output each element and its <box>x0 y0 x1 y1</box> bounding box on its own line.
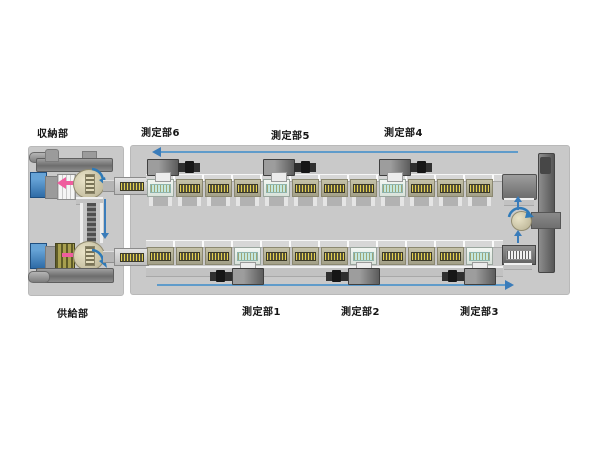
station-label-plate <box>353 184 374 193</box>
camera-bracket <box>271 172 287 182</box>
label-measurement4: 測定部4 <box>384 124 423 139</box>
station-label-plate <box>208 252 229 261</box>
camera-unit-measurement5 <box>263 158 318 186</box>
label-measurement5: 測定部5 <box>271 127 310 142</box>
measurement-station-olive <box>466 179 493 197</box>
unit-label-plate <box>120 182 144 191</box>
camera-unit-measurement1 <box>210 262 265 290</box>
right-transfer-block <box>531 212 561 229</box>
camera-lens-icon <box>294 161 316 173</box>
top-cross-unit <box>114 177 149 195</box>
camera-body <box>464 268 496 285</box>
camera-unit-measurement3 <box>442 262 497 290</box>
measurement-station-olive <box>205 179 232 197</box>
top-flow-line <box>160 151 518 153</box>
camera-unit-measurement6 <box>147 158 202 186</box>
camera-lens-icon <box>326 270 348 282</box>
unit-label-plate <box>120 253 144 262</box>
camera-body <box>348 268 380 285</box>
camera-bracket <box>155 172 171 182</box>
station-label-plate <box>179 252 200 261</box>
station-label-plate <box>411 252 432 261</box>
label-measurement2: 測定部2 <box>341 303 380 318</box>
station-label-plate <box>469 184 490 193</box>
return-conveyor-belt <box>87 203 96 243</box>
return-conveyor <box>80 203 103 243</box>
station-label-plate <box>382 252 403 261</box>
measurement-station-olive <box>147 247 174 265</box>
station-label-plate <box>440 184 461 193</box>
label-measurement1: 測定部1 <box>242 303 281 318</box>
measurement-station-olive <box>437 179 464 197</box>
station-label-plate <box>324 252 345 261</box>
return-flow-line <box>104 199 106 233</box>
camera-lens-icon <box>210 270 232 282</box>
right-up-arrowhead-icon <box>514 230 522 236</box>
station-label-plate <box>440 252 461 261</box>
label-storage: 収納部 <box>37 125 69 140</box>
station-label-plate <box>150 252 171 261</box>
measurement-station-olive <box>379 247 406 265</box>
machine-layout-diagram: 収納部 測定部6 測定部5 測定部4 リターンコンベア 供給部 測定部1 測定部… <box>0 0 600 450</box>
camera-bracket <box>387 172 403 182</box>
camera-unit-measurement4 <box>379 158 434 186</box>
station-label-plate <box>469 252 490 261</box>
station-label-plate <box>208 184 229 193</box>
rotary-rotation-arrow-icon <box>506 204 535 220</box>
supply-cylinder <box>28 271 50 283</box>
end-station-label-plate <box>506 250 532 260</box>
camera-unit-measurement2 <box>326 262 381 290</box>
station-label-plate <box>237 184 258 193</box>
right-lift-cap <box>540 157 551 174</box>
measurement-station-olive <box>350 179 377 197</box>
camera-lens-icon <box>410 161 432 173</box>
label-measurement3: 測定部3 <box>460 303 499 318</box>
measurement-station-olive <box>234 179 261 197</box>
top-flow-arrowhead-icon <box>152 147 161 157</box>
camera-body <box>232 268 264 285</box>
station-label-plate <box>295 252 316 261</box>
measurement-station-olive <box>176 247 203 265</box>
measurement-station-olive <box>408 247 435 265</box>
return-flow-arrowhead-icon <box>101 233 109 239</box>
label-measurement6: 測定部6 <box>141 124 180 139</box>
bottom-flow-arrowhead-icon <box>505 280 514 290</box>
measurement-station-olive <box>263 247 290 265</box>
bottom-cross-unit <box>114 248 149 266</box>
right-up-flow-line-top <box>517 201 519 210</box>
station-label-plate <box>266 252 287 261</box>
right-up-flow-line-bottom <box>517 235 519 243</box>
label-supply: 供給部 <box>57 305 89 320</box>
camera-lens-icon <box>178 161 200 173</box>
station-label-plate <box>237 252 258 261</box>
bottom-end-shelf <box>504 263 532 270</box>
storage-motor <box>45 149 59 162</box>
right-up-arrowhead-icon <box>514 196 522 202</box>
bottom-row-end-station <box>502 245 536 265</box>
measurement-station-olive <box>292 247 319 265</box>
station-label-plate <box>324 184 345 193</box>
station-label-plate <box>353 252 374 261</box>
measurement-station-olive <box>321 179 348 197</box>
camera-lens-icon <box>442 270 464 282</box>
